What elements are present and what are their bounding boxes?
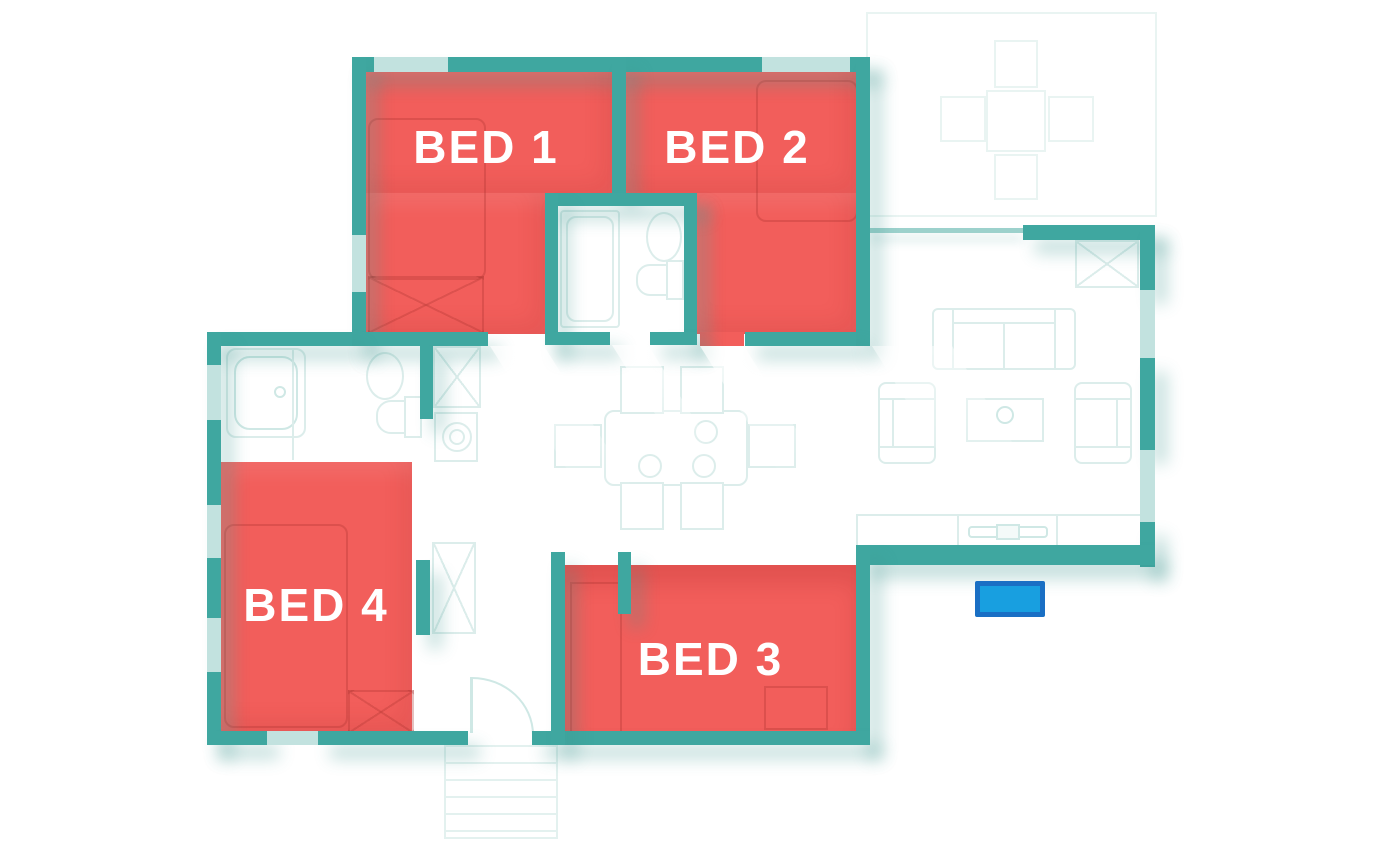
wall <box>856 545 870 745</box>
dining-chair <box>554 424 602 468</box>
blue-marker[interactable] <box>975 581 1045 617</box>
wardrobe <box>348 690 414 734</box>
patio-chair <box>1048 96 1094 142</box>
toilet-tank <box>666 260 684 300</box>
dining-table <box>604 410 748 486</box>
patio-chair <box>994 40 1038 88</box>
wardrobe <box>368 276 484 334</box>
dining-chair <box>680 366 724 414</box>
patio-table <box>986 90 1046 152</box>
entry-stairs <box>444 745 558 839</box>
closet <box>433 346 481 408</box>
washing-machine <box>434 412 478 462</box>
wall <box>545 332 610 345</box>
dining-chair <box>620 482 664 530</box>
window <box>207 365 221 420</box>
sofa <box>932 308 1076 370</box>
wall <box>745 332 856 346</box>
armchair <box>1074 382 1132 464</box>
shower-tray <box>566 216 614 322</box>
wall <box>416 560 430 635</box>
wall <box>207 332 352 346</box>
window <box>1140 450 1155 522</box>
wall <box>1140 358 1155 450</box>
entry-door-leaf <box>470 677 473 733</box>
storage-cabinet <box>1075 240 1139 288</box>
window <box>267 731 318 745</box>
wall <box>650 332 697 345</box>
wardrobe <box>432 542 476 634</box>
sliding-door <box>870 228 1023 233</box>
wall <box>618 552 631 614</box>
wall <box>352 57 366 346</box>
coffee-table <box>966 398 1044 442</box>
sink <box>646 212 682 262</box>
patio-chair <box>994 154 1038 200</box>
wall <box>532 731 870 745</box>
window <box>352 235 366 292</box>
dining-chair <box>680 482 724 530</box>
floorplan: BED 1 BED 2 BED 3 BED 4 <box>0 0 1380 848</box>
window <box>762 57 850 72</box>
wall <box>318 731 468 745</box>
wall <box>858 545 1155 565</box>
sink <box>764 686 828 730</box>
patio-chair <box>940 96 986 142</box>
wall <box>856 57 870 346</box>
room-label-bed-3: BED 3 <box>565 636 856 682</box>
sink <box>366 352 404 400</box>
wall <box>352 332 488 346</box>
dining-chair <box>748 424 796 468</box>
wall <box>420 346 433 419</box>
room-label-bed-1: BED 1 <box>360 124 612 170</box>
room-label-bed-4: BED 4 <box>220 582 412 628</box>
wall <box>545 193 558 345</box>
entry-door-swing <box>472 677 534 735</box>
room-bed-2-door-gap <box>700 332 744 346</box>
wall <box>545 193 697 206</box>
armchair <box>878 382 936 464</box>
wall <box>207 731 267 745</box>
window <box>1140 290 1155 358</box>
tv-sideboard <box>856 514 1154 548</box>
wall <box>1140 225 1155 290</box>
partition-line <box>292 348 294 460</box>
bathtub <box>226 348 306 438</box>
window <box>374 57 448 72</box>
wall <box>1023 225 1155 240</box>
wall <box>551 552 565 745</box>
room-label-bed-2: BED 2 <box>618 124 856 170</box>
wall <box>684 193 697 345</box>
window <box>207 505 221 558</box>
window <box>207 618 221 672</box>
dining-chair <box>620 366 664 414</box>
